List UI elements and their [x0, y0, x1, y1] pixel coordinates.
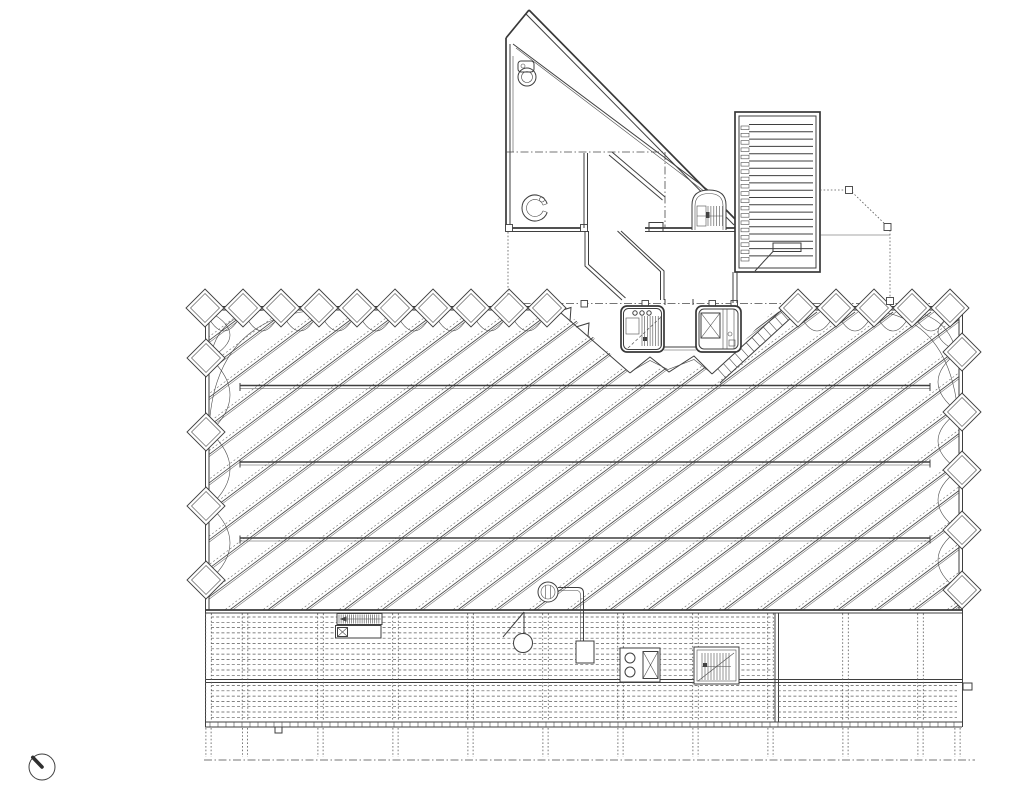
wedge-corridor	[589, 231, 626, 298]
wedge-structure	[506, 10, 529, 38]
canopy-dashed-outline	[884, 224, 891, 231]
roof-access-ladder-rungs	[769, 322, 777, 331]
wedge-structure	[529, 10, 737, 221]
roof-access-ladder-rungs	[723, 364, 731, 373]
roof-edge-diamonds-diamonds	[187, 339, 225, 377]
wedge-structure	[543, 204, 547, 206]
deck	[963, 683, 972, 690]
deck-louver-box	[620, 648, 660, 682]
roof-access-ladder-rungs	[775, 316, 783, 325]
roof-edge-diamonds-diamonds	[187, 561, 225, 599]
roof-edges	[581, 301, 588, 308]
roof-access-ladder-rungs	[746, 343, 754, 352]
wedge-structure	[522, 72, 533, 83]
roof-edge-diamonds-diamonds	[186, 289, 224, 327]
wedge-structure	[513, 44, 716, 196]
roof-access-ladder-rungs	[752, 337, 760, 346]
wedge-structure	[521, 64, 525, 68]
deck-louver-box	[620, 648, 660, 682]
wedge-structure	[540, 197, 545, 202]
canopy-dashed-outline	[846, 187, 853, 194]
wedge-corridor	[585, 231, 693, 305]
wedge-corridor	[621, 231, 664, 300]
deck-stair-box	[694, 647, 739, 684]
canopy-dashed-outline	[852, 192, 888, 227]
roof-access-ladder-rungs	[735, 353, 743, 362]
wedge-structure	[649, 223, 663, 232]
north-arrow	[33, 757, 42, 767]
roof-edge-diamonds-diamonds	[943, 511, 981, 549]
wedge-structure	[543, 211, 547, 213]
small-stair	[692, 190, 726, 230]
roof-edge-diamonds-diamonds	[187, 487, 225, 525]
roof-edge-diamonds-diamonds	[893, 289, 931, 327]
roof-hatch-rline	[0, 312, 209, 612]
roof-notch	[553, 298, 786, 374]
deck-valve	[514, 634, 533, 653]
wedge-corridor	[618, 231, 661, 300]
roof-access-ladder-rungs	[740, 348, 748, 357]
wedge-structure	[527, 200, 543, 217]
deck-stair-comb	[336, 614, 383, 639]
north-arrow	[29, 754, 55, 780]
roof-elevator	[696, 306, 741, 352]
roof-plan-page	[0, 0, 1024, 806]
canopy-dashed-outline	[820, 187, 894, 305]
roof-hatch-rline	[0, 312, 204, 612]
roof-access-ladder-rungs	[758, 332, 766, 341]
roof-stair-enclosure	[621, 306, 664, 352]
roof-edge-diamonds-diamonds	[943, 393, 981, 431]
roof-hatch-rline	[0, 312, 212, 612]
roof-access-ladder-rungs	[718, 369, 726, 378]
deck	[204, 610, 975, 760]
roof-hatch-rline	[0, 312, 280, 612]
deck-pump-and-pipe	[576, 641, 594, 663]
wedge-structure	[516, 48, 713, 198]
deck-pump-and-pipe	[558, 591, 581, 642]
roof-plan-drawing	[0, 0, 1024, 806]
roof-edge-diamonds-diamonds	[817, 289, 855, 327]
wedge-structure	[609, 155, 663, 200]
wedge-structure	[522, 195, 547, 221]
roof-edge-diamonds-diamonds	[943, 571, 981, 609]
roof-edge-diamonds-diamonds	[943, 333, 981, 371]
wedge-structure	[506, 10, 743, 296]
roof-access-ladder-rungs	[729, 358, 737, 367]
stair-hall	[733, 112, 820, 303]
wedge-structure	[506, 225, 513, 232]
wedge-structure	[612, 152, 665, 197]
roof-edge-diamonds-diamonds	[855, 289, 893, 327]
roof-edge-swags	[205, 310, 959, 590]
roof-edge-diamonds-diamonds	[779, 289, 817, 327]
deck-stair-box	[694, 647, 739, 684]
canopy-dashed-outline	[887, 298, 894, 305]
roof-edge-diamonds-diamonds	[943, 451, 981, 489]
deck-valve	[503, 612, 533, 653]
deck	[275, 727, 282, 733]
roof-access-ladder-rungs	[763, 327, 771, 336]
